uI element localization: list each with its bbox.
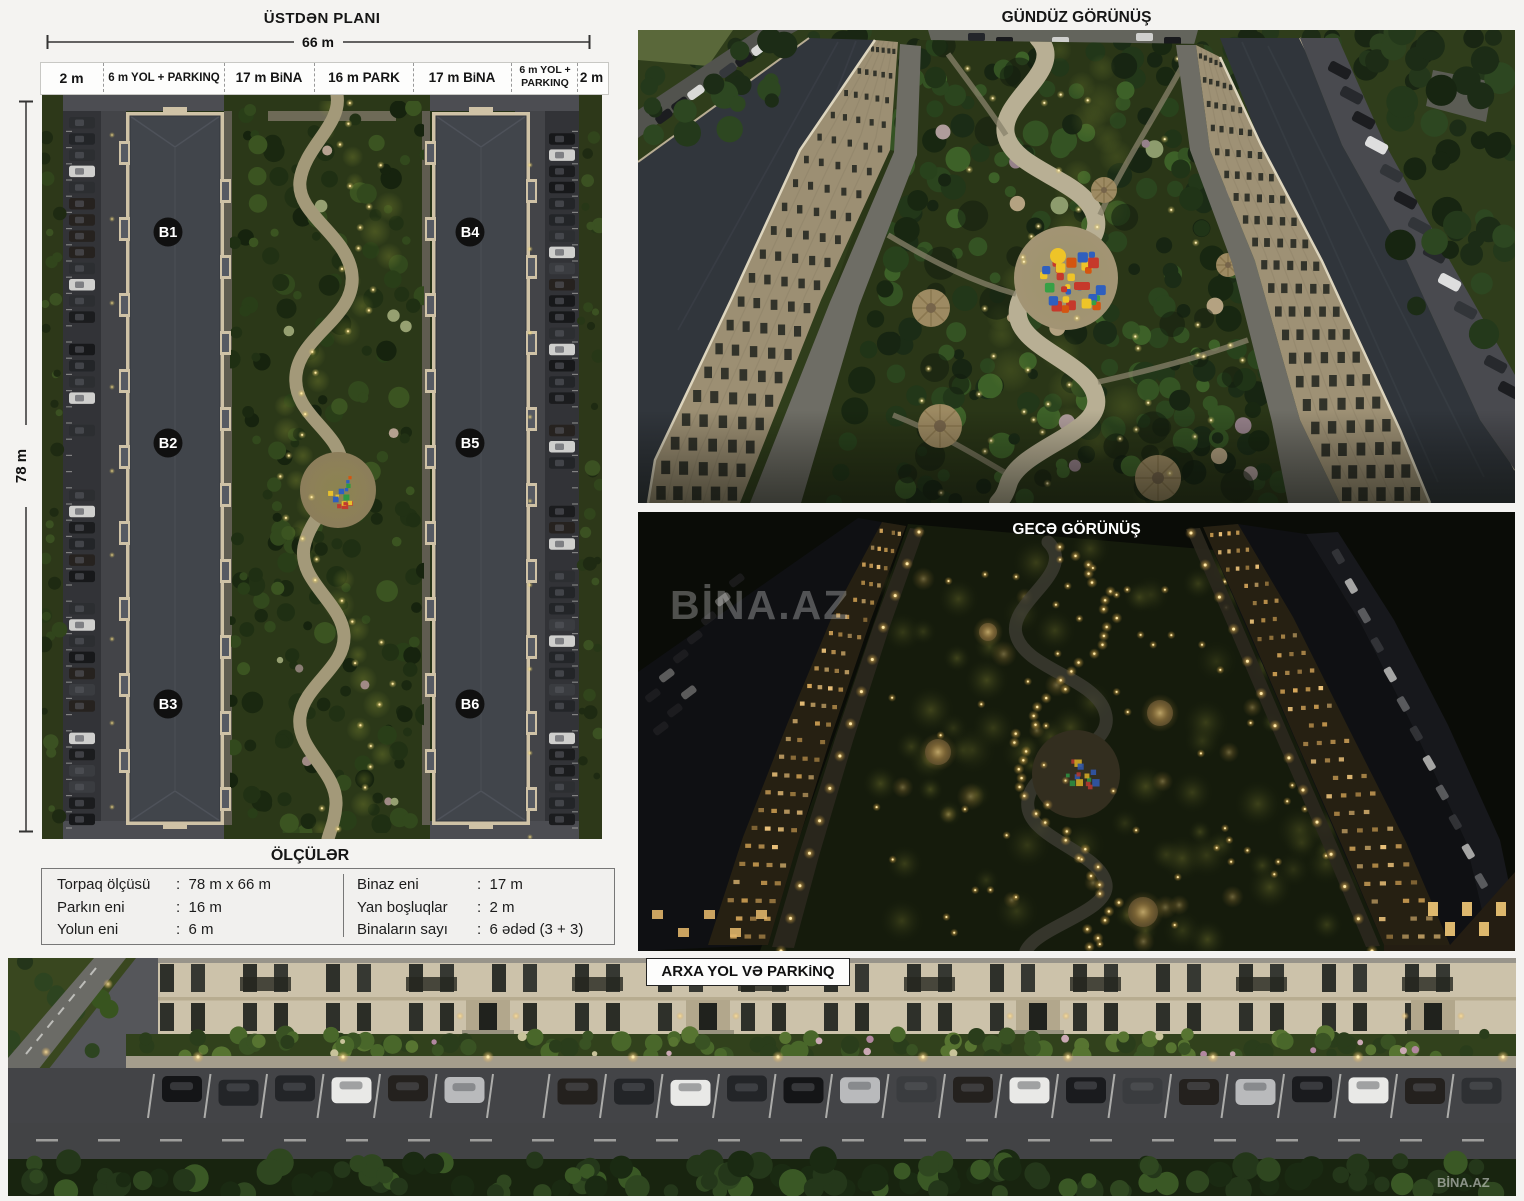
svg-text:B4: B4 bbox=[461, 225, 480, 241]
svg-text:66 m: 66 m bbox=[302, 34, 334, 50]
svg-text:B3: B3 bbox=[159, 697, 178, 713]
svg-text:78 m: 78 m bbox=[14, 449, 30, 483]
svg-text:B5: B5 bbox=[461, 436, 480, 452]
svg-text:B2: B2 bbox=[159, 436, 178, 452]
svg-text:B6: B6 bbox=[461, 697, 480, 713]
svg-text:B1: B1 bbox=[159, 225, 178, 241]
